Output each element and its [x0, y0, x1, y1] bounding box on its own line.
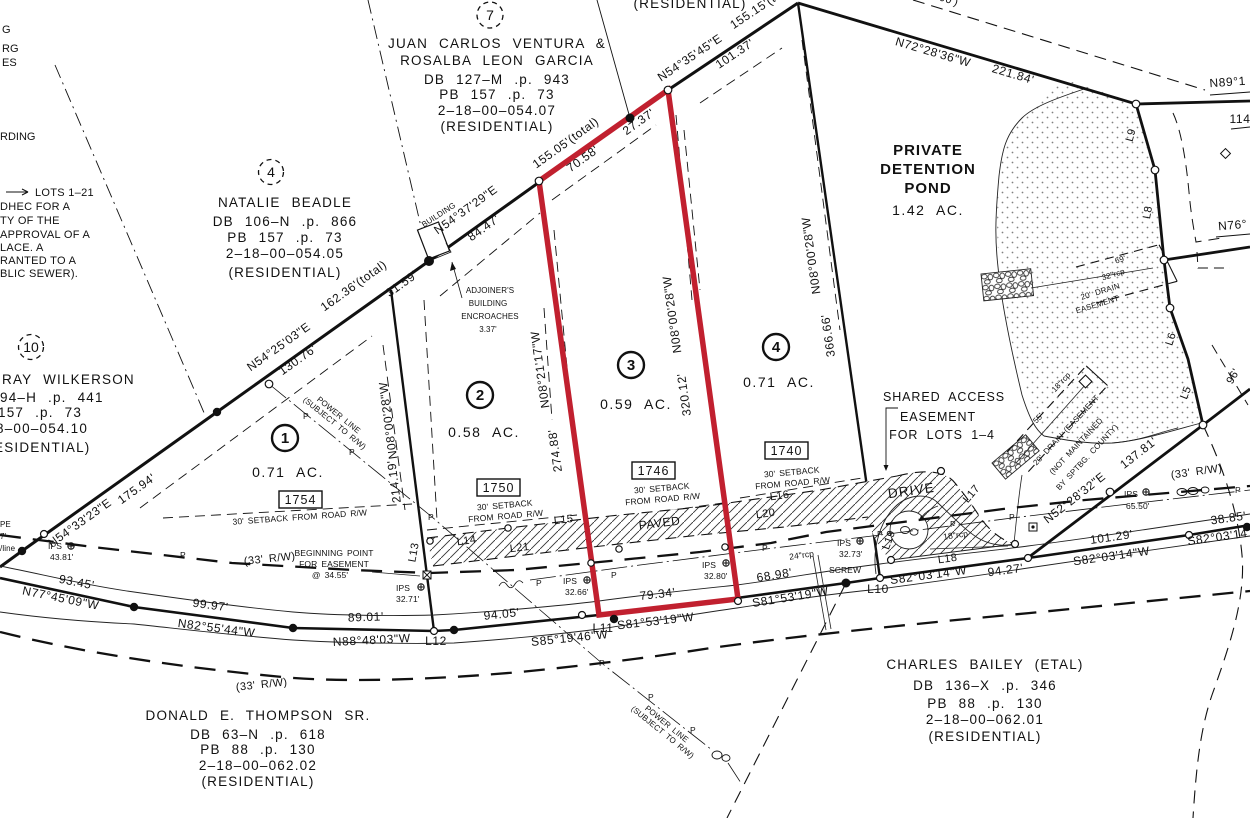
svg-text:IPS: IPS [702, 560, 716, 570]
svg-text:PRIVATE: PRIVATE [893, 142, 963, 159]
svg-text:BEGINNING POINT: BEGINNING POINT [294, 548, 373, 558]
svg-text:ESIDENTIAL): ESIDENTIAL) [0, 440, 90, 455]
svg-text:32.73': 32.73' [839, 549, 863, 559]
svg-text:89.01': 89.01' [348, 609, 384, 624]
svg-text:1746: 1746 [638, 464, 670, 478]
svg-text:P: P [536, 578, 542, 588]
svg-text:@ 34.55': @ 34.55' [312, 570, 348, 580]
svg-text:IPS: IPS [396, 583, 410, 593]
svg-text:APPROVAL OF A: APPROVAL OF A [0, 229, 90, 241]
svg-text:N76°: N76° [1217, 217, 1247, 233]
svg-text:IPS: IPS [563, 576, 577, 586]
svg-text:P: P [950, 519, 956, 529]
svg-text:RANTED TO A: RANTED TO A [0, 255, 77, 267]
svg-text:POND: POND [904, 180, 951, 197]
svg-text:(RESIDENTIAL): (RESIDENTIAL) [440, 119, 553, 134]
svg-text:1740: 1740 [771, 444, 803, 458]
svg-text:IPS: IPS [48, 541, 62, 551]
svg-text:DB 106–N .p. 866: DB 106–N .p. 866 [213, 214, 358, 229]
svg-text:4: 4 [267, 164, 275, 180]
svg-text:1: 1 [281, 430, 289, 447]
svg-text:1750: 1750 [483, 481, 515, 495]
svg-text:BUILDING: BUILDING [469, 299, 508, 308]
svg-text:(RESIDENTIAL): (RESIDENTIAL) [928, 729, 1041, 744]
svg-text:ADJOINER'S: ADJOINER'S [466, 286, 514, 295]
svg-text:3: 3 [627, 357, 635, 374]
svg-text:RDING: RDING [0, 131, 35, 143]
svg-text:0.58 AC.: 0.58 AC. [448, 424, 520, 440]
svg-text:(RESIDENTIAL): (RESIDENTIAL) [201, 774, 314, 789]
svg-text:L10: L10 [867, 582, 889, 596]
svg-text:4: 4 [772, 339, 781, 356]
svg-text:DONALD E. THOMPSON SR.: DONALD E. THOMPSON SR. [146, 708, 371, 723]
svg-text:DETENTION: DETENTION [880, 161, 976, 178]
svg-text:BLIC SEWER).: BLIC SEWER). [0, 268, 78, 280]
svg-text:7: 7 [486, 7, 494, 23]
svg-text:PB 157 .p. 73: PB 157 .p. 73 [439, 87, 554, 102]
svg-text:(RESIDENTIAL): (RESIDENTIAL) [228, 265, 341, 280]
svg-text:0.59 AC.: 0.59 AC. [600, 396, 672, 412]
svg-text:NATALIE BEADLE: NATALIE BEADLE [218, 195, 352, 210]
svg-text:FOR LOTS 1–4: FOR LOTS 1–4 [889, 428, 995, 442]
svg-text:SHARED ACCESS: SHARED ACCESS [883, 390, 1005, 404]
svg-text:L21: L21 [509, 541, 530, 555]
svg-text:43.81': 43.81' [50, 552, 74, 562]
svg-text:ROSALBA LEON GARCIA: ROSALBA LEON GARCIA [400, 53, 594, 68]
svg-text:JUAN CARLOS VENTURA &: JUAN CARLOS VENTURA & [388, 36, 606, 51]
svg-text:TY OF THE: TY OF THE [0, 215, 60, 227]
svg-text:RAY WILKERSON: RAY WILKERSON [2, 372, 135, 387]
svg-text:PB 88 .p. 130: PB 88 .p. 130 [200, 742, 315, 757]
svg-text:2–18–00–062.02: 2–18–00–062.02 [199, 758, 317, 773]
svg-text:1.42 AC.: 1.42 AC. [892, 202, 964, 218]
svg-text:FOR EASEMENT: FOR EASEMENT [299, 559, 369, 569]
svg-text:PB 88 .p. 130: PB 88 .p. 130 [927, 696, 1042, 711]
svg-text:7': 7' [0, 532, 7, 541]
svg-text:3.37': 3.37' [479, 325, 497, 334]
svg-text:L12: L12 [425, 634, 447, 648]
svg-text:(RESIDENTIAL): (RESIDENTIAL) [633, 0, 746, 11]
svg-text:1754: 1754 [285, 493, 317, 507]
svg-text:SCREW: SCREW [829, 565, 861, 575]
svg-text:32.80': 32.80' [704, 571, 728, 581]
svg-text:ES: ES [2, 57, 17, 69]
svg-text:2–18–00–054.05: 2–18–00–054.05 [226, 246, 344, 261]
svg-text:RG: RG [2, 43, 19, 55]
svg-text:PB 157 .p. 73: PB 157 .p. 73 [227, 230, 342, 245]
svg-text:L8: L8 [1141, 205, 1155, 220]
svg-text:P: P [690, 725, 696, 735]
svg-text:LACE. A: LACE. A [0, 242, 44, 254]
svg-text:65.50': 65.50' [1126, 501, 1150, 511]
svg-text:P: P [599, 658, 605, 668]
svg-text:G: G [2, 24, 11, 36]
svg-text:114: 114 [1230, 112, 1250, 126]
svg-text:2–18–00–062.01: 2–18–00–062.01 [926, 712, 1044, 727]
svg-text:32.71': 32.71' [396, 594, 420, 604]
svg-text:DB 127–M .p. 943: DB 127–M .p. 943 [424, 72, 570, 87]
svg-text:2: 2 [476, 387, 484, 404]
svg-text:P: P [762, 543, 768, 553]
svg-text:2–18–00–054.07: 2–18–00–054.07 [438, 103, 556, 118]
svg-text:P: P [349, 447, 355, 457]
svg-text:N89°1: N89°1 [1209, 74, 1246, 91]
svg-text:ENCROACHES: ENCROACHES [461, 312, 518, 321]
svg-text:P: P [428, 512, 434, 522]
svg-text:P: P [180, 550, 186, 560]
svg-text:P: P [877, 529, 883, 539]
svg-text:P: P [648, 692, 654, 702]
svg-text:EASEMENT: EASEMENT [900, 410, 976, 424]
svg-text:/line: /line [0, 544, 16, 553]
svg-text:L11: L11 [593, 621, 614, 635]
svg-text:IPS: IPS [837, 538, 851, 548]
svg-text:10: 10 [23, 339, 39, 355]
svg-text:94–H .p. 441: 94–H .p. 441 [0, 390, 104, 405]
svg-text:L15: L15 [553, 513, 574, 527]
svg-text:P: P [1009, 512, 1015, 522]
svg-text:DB 63–N .p. 618: DB 63–N .p. 618 [190, 727, 326, 742]
svg-text:DHEC FOR A: DHEC FOR A [0, 201, 71, 213]
svg-text:0.71 AC.: 0.71 AC. [743, 374, 815, 390]
svg-text:32.66': 32.66' [565, 587, 589, 597]
svg-text:8–00–054.10: 8–00–054.10 [0, 421, 88, 436]
svg-text:LOTS 1–21: LOTS 1–21 [35, 187, 94, 199]
svg-text:157 .p. 73: 157 .p. 73 [0, 405, 82, 420]
svg-text:DB 136–X .p. 346: DB 136–X .p. 346 [913, 678, 1057, 693]
svg-text:PE: PE [0, 520, 11, 529]
svg-text:P: P [1235, 485, 1241, 495]
svg-text:P: P [611, 570, 617, 580]
svg-text:P: P [303, 411, 309, 421]
svg-text:IPS: IPS [1124, 489, 1138, 499]
svg-text:CHARLES BAILEY (ETAL): CHARLES BAILEY (ETAL) [886, 657, 1083, 672]
svg-text:0.71 AC.: 0.71 AC. [252, 464, 324, 480]
